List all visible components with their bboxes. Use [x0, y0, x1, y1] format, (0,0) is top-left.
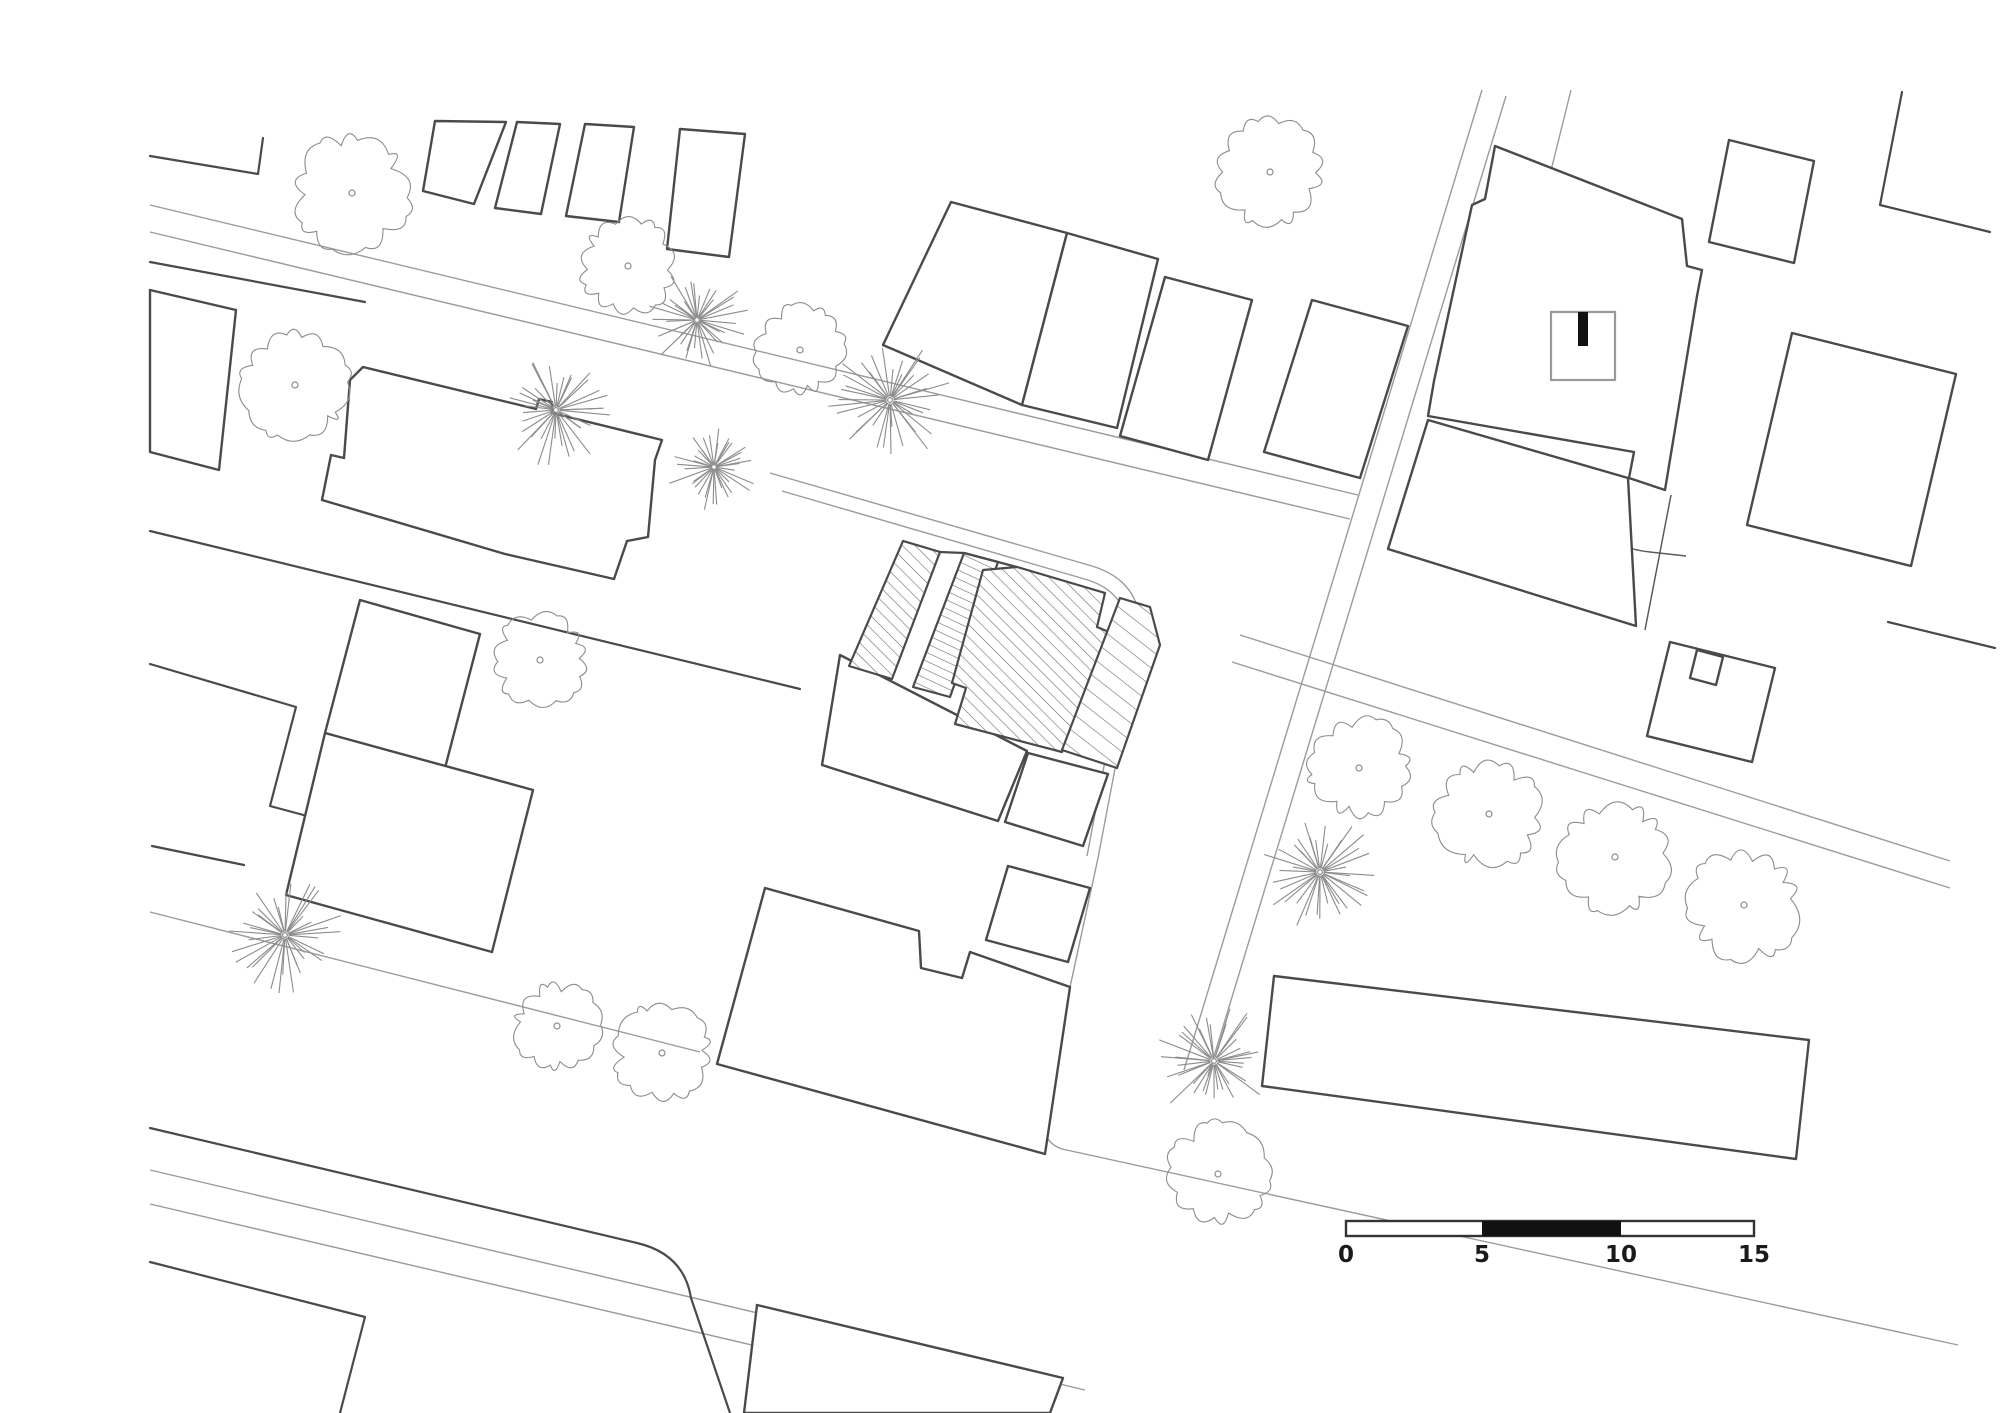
building-footprint — [1690, 650, 1723, 685]
marker-bar-icon — [1578, 312, 1588, 346]
site-plan-drawing: 0 5 10 15 — [0, 0, 2000, 1413]
building-footprint — [1709, 140, 1814, 263]
scale-label-10: 10 — [1605, 1242, 1637, 1268]
scale-bar-black-segment — [1482, 1221, 1621, 1236]
scale-label-0: 0 — [1338, 1242, 1354, 1268]
scale-label-5: 5 — [1474, 1242, 1490, 1268]
scale-label-15: 15 — [1738, 1242, 1770, 1268]
site-plan-page: 0 5 10 15 — [0, 0, 2000, 1413]
entrance-marker-symbol — [1551, 312, 1615, 380]
